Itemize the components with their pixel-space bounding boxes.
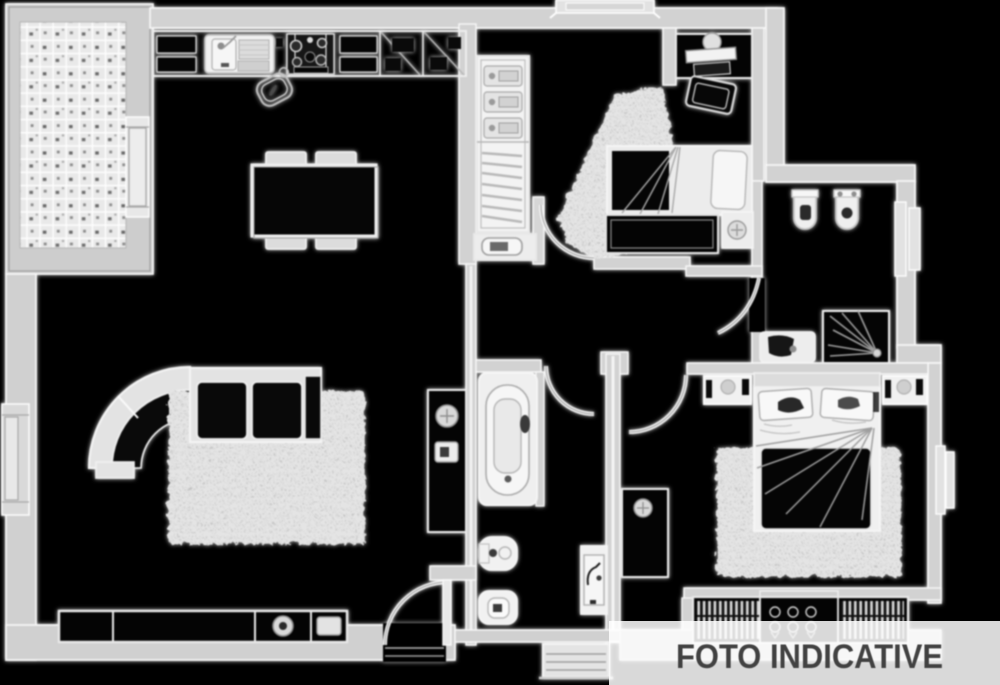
svg-text:FOTO INDICATIVE: FOTO INDICATIVE [676,638,943,676]
